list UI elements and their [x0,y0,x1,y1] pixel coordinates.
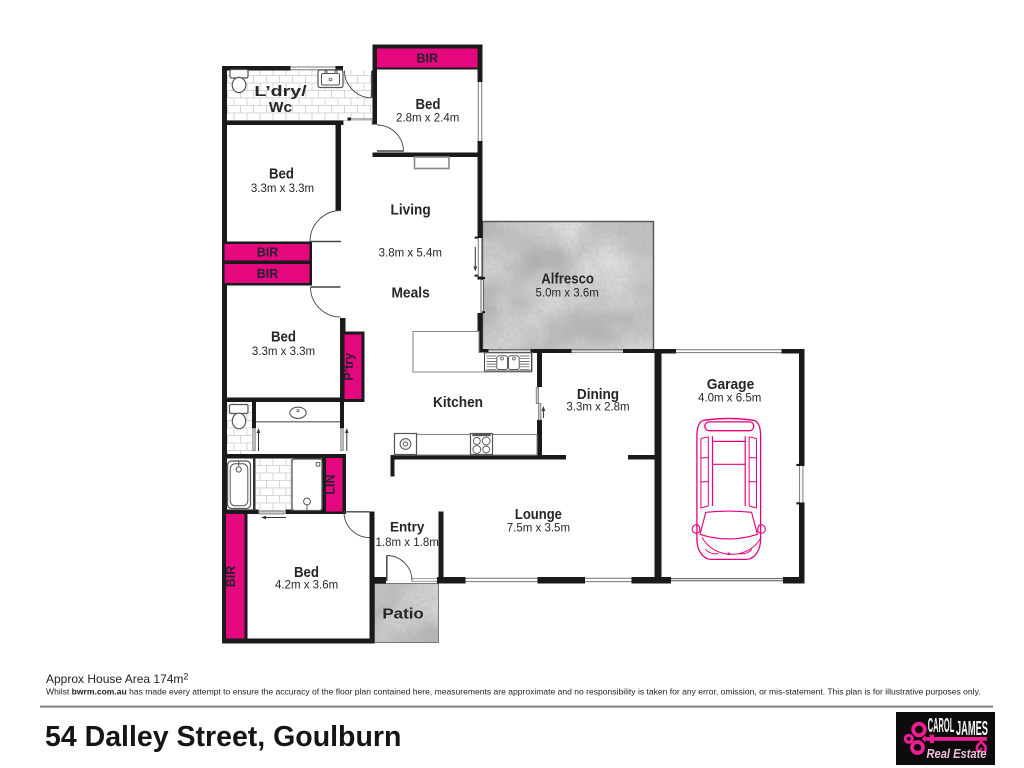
svg-text:Lounge: Lounge [515,506,562,523]
svg-text:L’dry/: L’dry/ [254,83,307,100]
svg-text:BIR: BIR [224,566,238,588]
svg-text:LIN: LIN [323,474,337,494]
svg-text:Real Estate: Real Estate [927,746,987,761]
svg-text:Dining: Dining [577,386,619,403]
svg-text:4.0m x 6.5m: 4.0m x 6.5m [698,393,761,405]
svg-text:BIR: BIR [257,267,279,281]
svg-text:Patio: Patio [382,606,423,623]
svg-text:3.3m x 2.8m: 3.3m x 2.8m [566,402,629,414]
svg-text:JAMES: JAMES [956,718,988,740]
svg-text:Entry: Entry [390,519,425,535]
svg-text:5.0m x 3.6m: 5.0m x 3.6m [536,287,599,299]
svg-text:Bed: Bed [269,166,294,183]
svg-text:BIR: BIR [257,246,279,260]
svg-text:Wc: Wc [269,99,292,116]
svg-text:54 Dalley Street, Goulburn: 54 Dalley Street, Goulburn [45,721,401,753]
svg-text:Living: Living [391,202,431,219]
svg-text:3.3m x 3.3m: 3.3m x 3.3m [252,346,315,358]
svg-text:Bed: Bed [416,96,441,113]
svg-text:7.5m x 3.5m: 7.5m x 3.5m [507,522,570,534]
svg-text:3.3m x 3.3m: 3.3m x 3.3m [251,183,314,195]
svg-text:CAROL: CAROL [928,715,955,737]
svg-text:Meals: Meals [391,284,429,301]
svg-text:1.8m x 1.8m: 1.8m x 1.8m [376,537,439,549]
svg-text:2.8m x 2.4m: 2.8m x 2.4m [396,112,459,124]
svg-text:Garage: Garage [707,376,755,393]
svg-text:Bed: Bed [271,329,296,346]
svg-text:4.2m x 3.6m: 4.2m x 3.6m [275,580,338,592]
svg-text:3.8m x 5.4m: 3.8m x 5.4m [379,248,442,260]
svg-text:Kitchen: Kitchen [433,394,483,411]
svg-text:Approx House Area 174m2: Approx House Area 174m2 [46,672,188,687]
svg-text:BIR: BIR [417,52,439,66]
svg-text:P’try: P’try [342,353,356,381]
svg-text:Whilst bwrm.com.au has made ev: Whilst bwrm.com.au has made every attemp… [46,687,981,697]
svg-text:Alfresco: Alfresco [541,271,594,288]
